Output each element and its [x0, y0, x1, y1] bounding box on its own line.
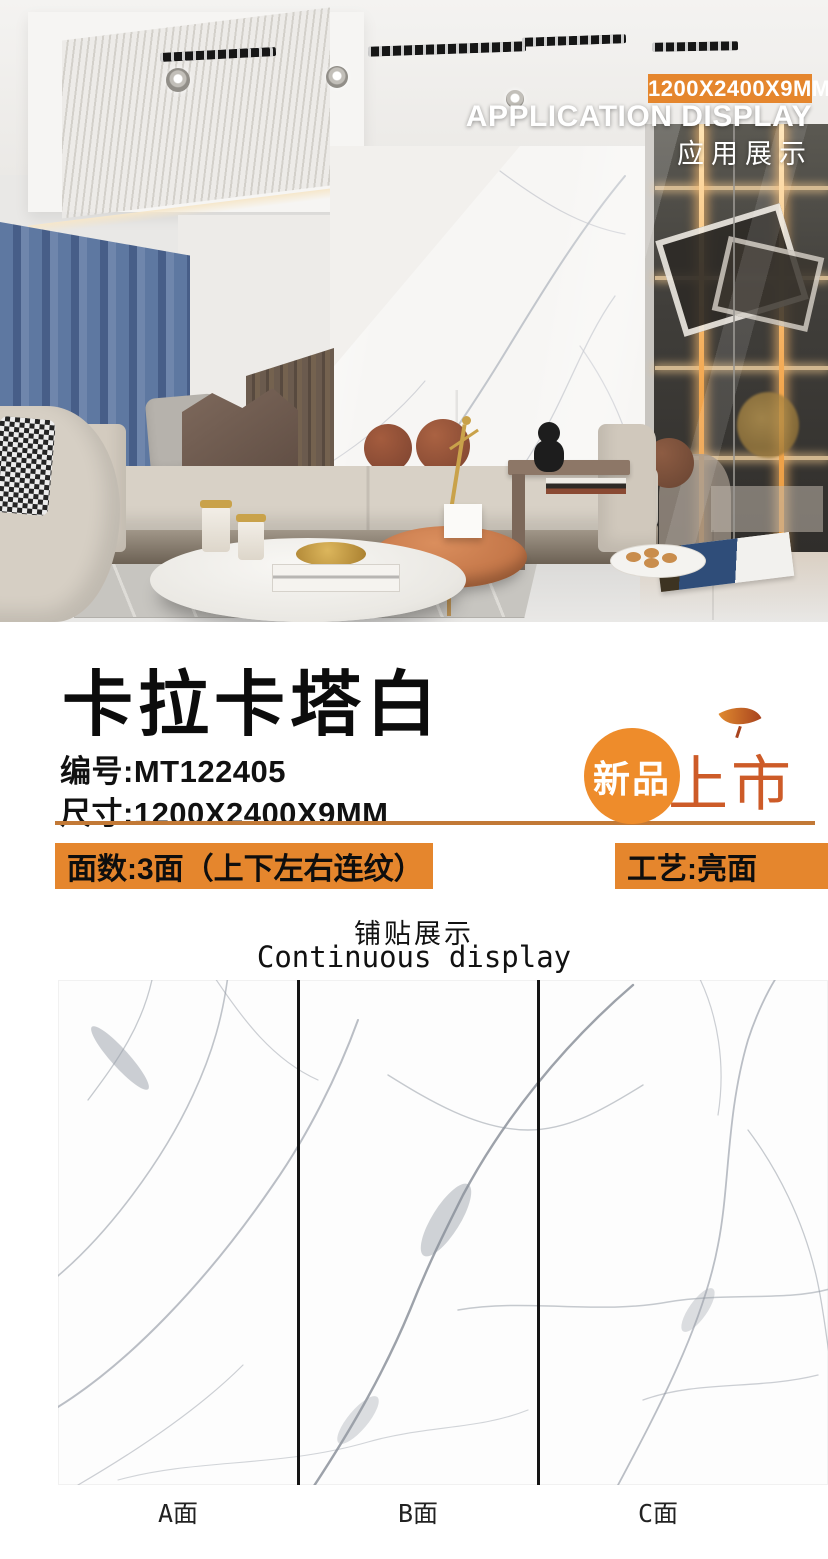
panel-divider	[537, 980, 540, 1485]
panel-divider	[297, 980, 300, 1485]
cookie	[644, 548, 659, 558]
track-light	[652, 41, 738, 51]
product-poster: 1200X2400X9MM APPLICATION DISPLAY 应用展示 卡…	[0, 0, 828, 1559]
black-figurine	[534, 440, 564, 472]
coffee-table-books	[272, 564, 400, 592]
decor-jar	[202, 506, 230, 552]
gold-lid	[200, 500, 232, 508]
books	[546, 478, 626, 494]
side-table	[508, 460, 630, 475]
gold-lid	[236, 514, 266, 522]
new-product-badge: 新品	[584, 728, 680, 824]
downlight	[166, 68, 190, 92]
product-name: 卡拉卡塔白	[62, 648, 442, 750]
round-pillow	[364, 424, 412, 472]
application-display-heading: APPLICATION DISPLAY	[466, 100, 812, 134]
tiling-heading-en: Continuous display	[0, 940, 828, 974]
glass-reflection	[645, 124, 828, 566]
cookie	[644, 558, 659, 568]
application-display-heading-cn: 应用展示	[677, 132, 813, 171]
faces-info-bar: 面数:3面（上下左右连纹）	[55, 843, 433, 889]
sculpture-base	[444, 504, 482, 538]
decor-jar	[238, 520, 264, 560]
product-code: 编号:MT122405	[60, 746, 286, 791]
marble-veins	[58, 980, 828, 1485]
glass-display-cabinet	[645, 124, 828, 566]
size-badge: 1200X2400X9MM	[648, 74, 812, 103]
ac-vent-grille	[62, 8, 330, 219]
application-photo: 1200X2400X9MM APPLICATION DISPLAY 应用展示	[0, 0, 828, 622]
new-product-badge-text: 上市	[668, 736, 794, 823]
houndstooth-pillow	[0, 416, 56, 517]
panel-label-a: A面	[148, 1494, 208, 1530]
glass-door-edge	[733, 124, 735, 566]
panel-label-c: C面	[628, 1494, 688, 1530]
cookie	[626, 552, 641, 562]
product-size: 尺寸:1200X2400X9MM	[60, 788, 389, 833]
sofa-seat	[78, 466, 658, 530]
cookie	[662, 553, 677, 563]
downlight	[326, 66, 348, 88]
gold-bowl	[296, 542, 366, 566]
craft-info-bar: 工艺:亮面	[615, 843, 828, 889]
gold-sculpture	[462, 416, 471, 425]
tile-veining-graphic	[58, 980, 828, 1485]
panel-label-b: B面	[388, 1494, 448, 1530]
